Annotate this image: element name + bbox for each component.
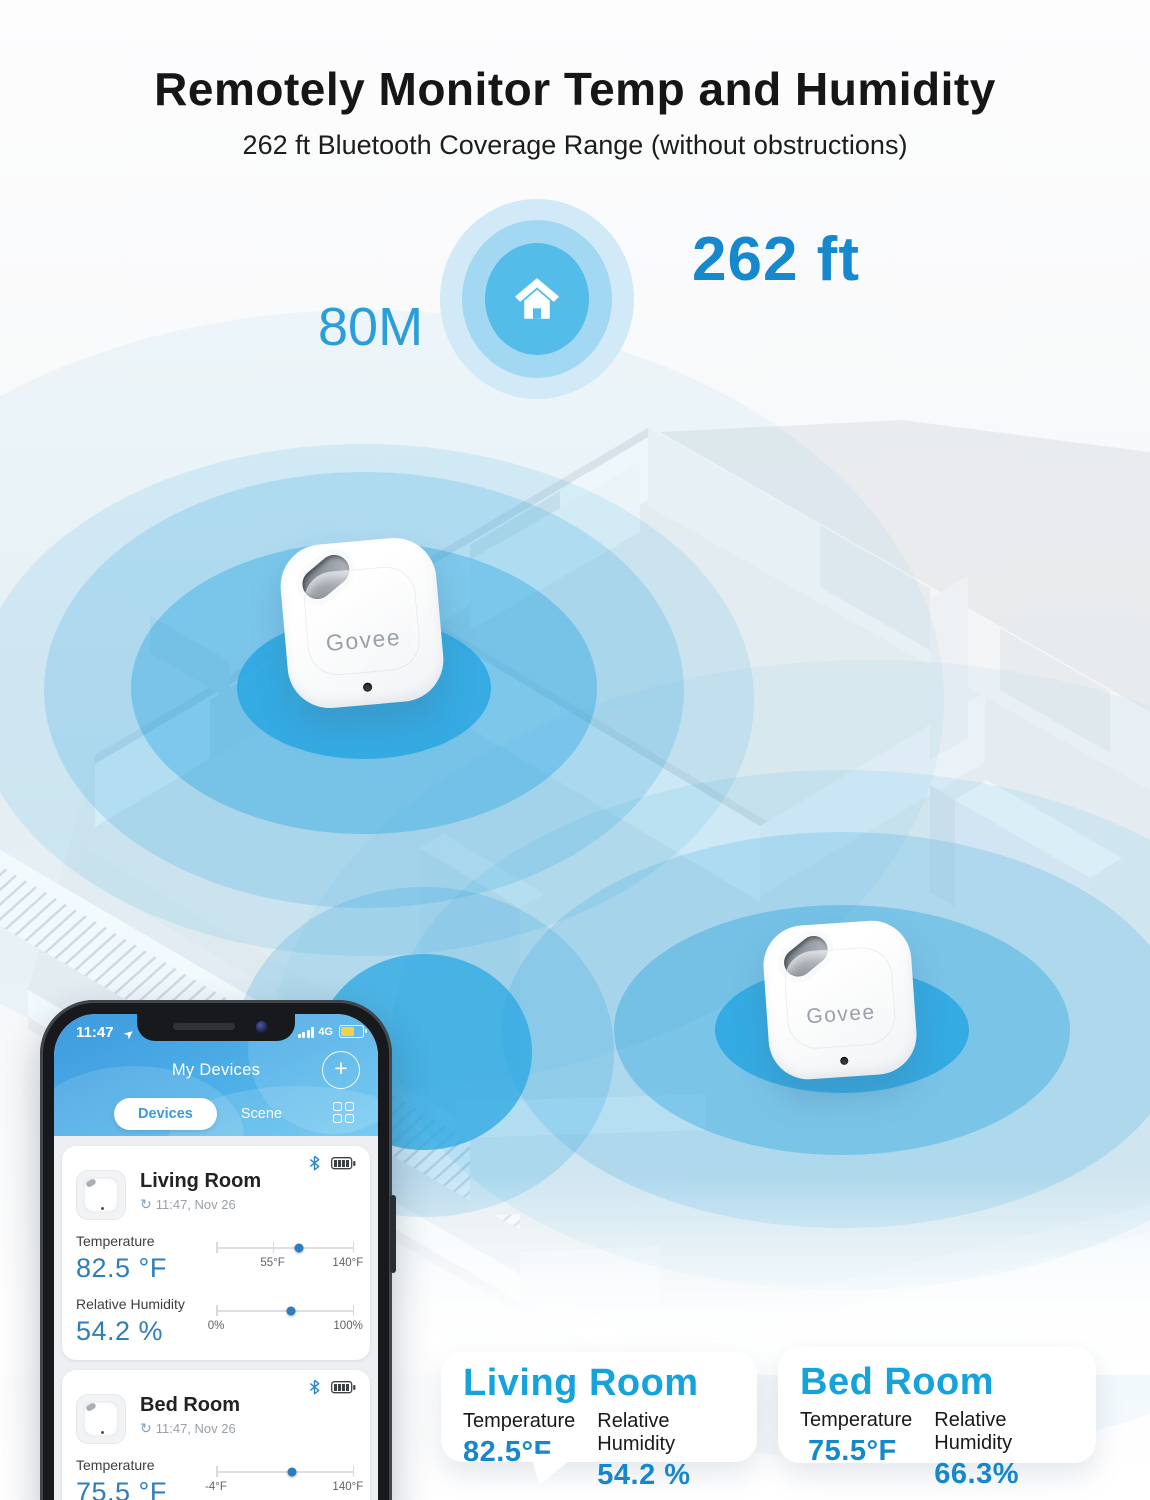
sensor-panel bbox=[783, 945, 898, 1050]
humidity-slider[interactable]: 0% 100% bbox=[216, 1302, 354, 1340]
network-label: 4G bbox=[318, 1027, 333, 1038]
tab-scene[interactable]: Scene bbox=[241, 1106, 282, 1122]
last-sync: ↻11:47, Nov 26 bbox=[140, 1196, 261, 1213]
phone-power-button bbox=[390, 1195, 396, 1273]
humidity-value: 54.2 % bbox=[597, 1459, 735, 1492]
grid-view-icon[interactable] bbox=[333, 1102, 356, 1125]
humidity-metric: Relative Humidity 54.2 % 0% 100% bbox=[76, 1296, 356, 1346]
device-list: Living Room ↻11:47, Nov 26 Temperature 8… bbox=[54, 1136, 378, 1500]
humidity-label: Relative Humidity bbox=[934, 1409, 1074, 1455]
slider-dot[interactable] bbox=[294, 1244, 303, 1253]
device-card-living-room[interactable]: Living Room ↻11:47, Nov 26 Temperature 8… bbox=[62, 1146, 370, 1360]
tab-bar: Devices Scene bbox=[54, 1097, 378, 1131]
clock: 11:47 bbox=[76, 1024, 114, 1041]
sensor-dot-icon bbox=[840, 1057, 849, 1066]
battery-icon bbox=[331, 1157, 356, 1170]
house-icon bbox=[508, 270, 566, 328]
sensor-dot-icon bbox=[363, 682, 373, 692]
govee-sensor-living-room: Govee bbox=[277, 535, 447, 712]
battery-icon bbox=[331, 1381, 356, 1394]
app-header: 11:47 ➤ 4G My Devices + Devices Scene bbox=[54, 1014, 378, 1136]
phone-screen: 11:47 ➤ 4G My Devices + Devices Scene bbox=[54, 1014, 378, 1500]
device-card-bed-room[interactable]: Bed Room ↻11:47, Nov 26 Temperature 75.5… bbox=[62, 1370, 370, 1500]
info-card-living-room: Living Room Temperature 82.5°F Relative … bbox=[441, 1352, 757, 1462]
temperature-value: 75.5°F bbox=[808, 1435, 912, 1468]
slider-dot[interactable] bbox=[286, 1307, 295, 1316]
product-infographic: Remotely Monitor Temp and Humidity 262 f… bbox=[0, 0, 1150, 1500]
device-name: Living Room bbox=[140, 1170, 261, 1193]
bluetooth-icon bbox=[309, 1155, 320, 1171]
status-bar: 11:47 ➤ 4G bbox=[54, 1022, 378, 1044]
slider-dot[interactable] bbox=[287, 1468, 296, 1477]
add-device-button[interactable]: + bbox=[322, 1051, 360, 1089]
humidity-label: Relative Humidity bbox=[597, 1410, 735, 1456]
battery-icon bbox=[339, 1025, 364, 1038]
device-thumbnail bbox=[76, 1394, 126, 1444]
last-sync: ↻11:47, Nov 26 bbox=[140, 1420, 240, 1437]
temperature-metric: Temperature 82.5 °F 55°F 140°F bbox=[76, 1233, 356, 1283]
bluetooth-icon bbox=[309, 1379, 320, 1395]
location-arrow-icon: ➤ bbox=[121, 1025, 138, 1042]
info-card-bed-room: Bed Room Temperature 75.5°F Relative Hum… bbox=[778, 1347, 1096, 1463]
refresh-icon[interactable]: ↻ bbox=[140, 1420, 152, 1436]
range-imperial-label: 262 ft bbox=[692, 224, 860, 295]
device-thumbnail bbox=[76, 1170, 126, 1220]
room-title: Living Room bbox=[463, 1362, 735, 1405]
signal-icon bbox=[298, 1027, 315, 1038]
humidity-value: 66.3% bbox=[934, 1458, 1074, 1491]
refresh-icon[interactable]: ↻ bbox=[140, 1196, 152, 1212]
device-name: Bed Room bbox=[140, 1394, 240, 1417]
temperature-metric: Temperature 75.5 °F -4°F 140°F bbox=[76, 1457, 356, 1500]
govee-sensor-bed-room: Govee bbox=[761, 918, 919, 1082]
temperature-slider[interactable]: 55°F 140°F bbox=[216, 1239, 354, 1277]
range-metric-label: 80M bbox=[318, 296, 423, 358]
tab-devices[interactable]: Devices bbox=[114, 1098, 217, 1130]
smartphone-mockup: 11:47 ➤ 4G My Devices + Devices Scene bbox=[40, 1000, 392, 1500]
room-title: Bed Room bbox=[800, 1361, 1074, 1404]
temperature-slider[interactable]: -4°F 140°F bbox=[216, 1463, 354, 1500]
temperature-label: Temperature bbox=[463, 1410, 575, 1433]
temperature-label: Temperature bbox=[800, 1409, 912, 1432]
sensor-panel bbox=[302, 564, 423, 677]
range-bubble-graphic bbox=[440, 199, 634, 399]
